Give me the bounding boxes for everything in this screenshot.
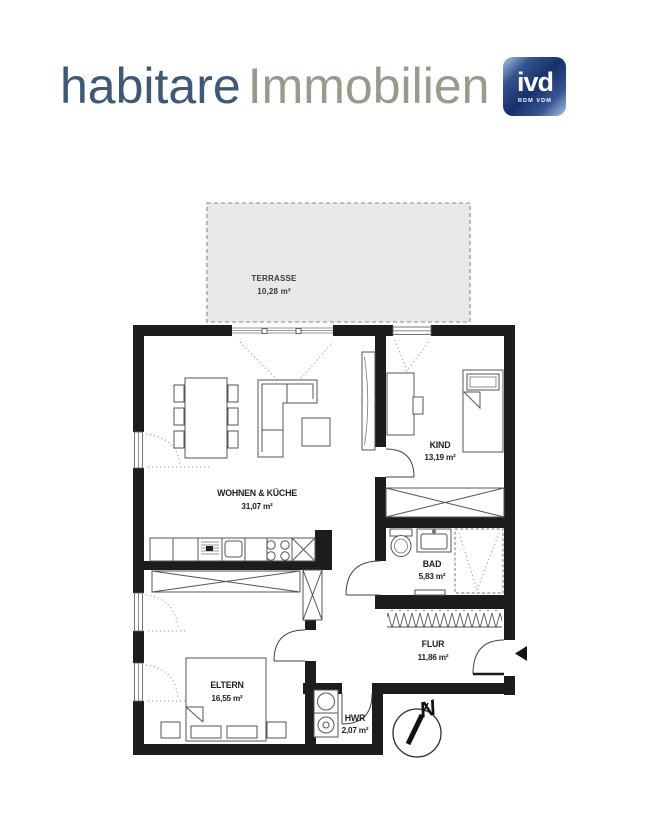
pillow [191, 726, 221, 738]
sideboard-eltern [152, 571, 300, 592]
entrance-arrow-icon [515, 646, 527, 661]
room-label-flur: FLUR 11,86 m² [418, 639, 449, 662]
terrace: TERRASSE 10,28 m² [207, 203, 470, 322]
window-living [135, 432, 143, 468]
room-label-kind: KIND 13,19 m² [424, 440, 456, 462]
hwr-appliances [314, 690, 338, 737]
room-label-wohnen: WOHNEN & KÜCHE 31,07 m² [217, 488, 297, 511]
wardrobe-kind [386, 488, 504, 517]
room-name: WOHNEN & KÜCHE [217, 488, 297, 498]
window-eltern-2 [135, 663, 143, 701]
desk-chair [413, 397, 423, 414]
room-name: KIND [430, 440, 451, 450]
tall-cabinet [303, 570, 322, 620]
coat-rack [387, 610, 502, 627]
toilet [390, 529, 412, 557]
room-area: 16,55 m² [211, 694, 243, 703]
nightstand [161, 722, 180, 738]
tv-board [362, 352, 375, 450]
coffee-table [302, 418, 330, 446]
door-kind [386, 449, 414, 477]
dining-table [174, 378, 238, 458]
dryer [314, 690, 338, 713]
door-bad [346, 561, 380, 595]
room-name: FLUR [422, 639, 445, 649]
floorplan: TERRASSE 10,28 m² [0, 0, 652, 840]
room-area: 11,86 m² [418, 653, 449, 662]
washing-machine [314, 713, 338, 737]
terrace-area: 10,28 m² [257, 287, 291, 296]
door-eltern [274, 630, 305, 661]
room-name: HWR [345, 713, 366, 723]
room-label-bad: BAD 5,83 m² [419, 559, 446, 581]
towel-radiator [415, 590, 445, 595]
room-area: 5,83 m² [419, 572, 446, 581]
pillow [227, 726, 257, 738]
window-eltern-1 [135, 593, 143, 631]
room-area: 31,07 m² [241, 502, 273, 511]
entrance-door [473, 640, 527, 674]
window-kind-top [393, 327, 431, 335]
terrace-sliding-door [232, 326, 333, 335]
room-area: 2,07 m² [342, 726, 369, 735]
room-area: 13,19 m² [424, 453, 456, 462]
room-name: ELTERN [210, 680, 243, 690]
bed-kind [463, 370, 503, 452]
desk-kind [387, 373, 423, 435]
nightstand [267, 722, 286, 738]
shower [455, 529, 503, 593]
room-name: BAD [423, 559, 441, 569]
terrace-label: TERRASSE [251, 274, 297, 283]
compass: N [393, 694, 441, 757]
bathroom-sink [417, 529, 451, 552]
kitchen-sink [225, 541, 242, 557]
kitchen-counter [150, 538, 315, 561]
